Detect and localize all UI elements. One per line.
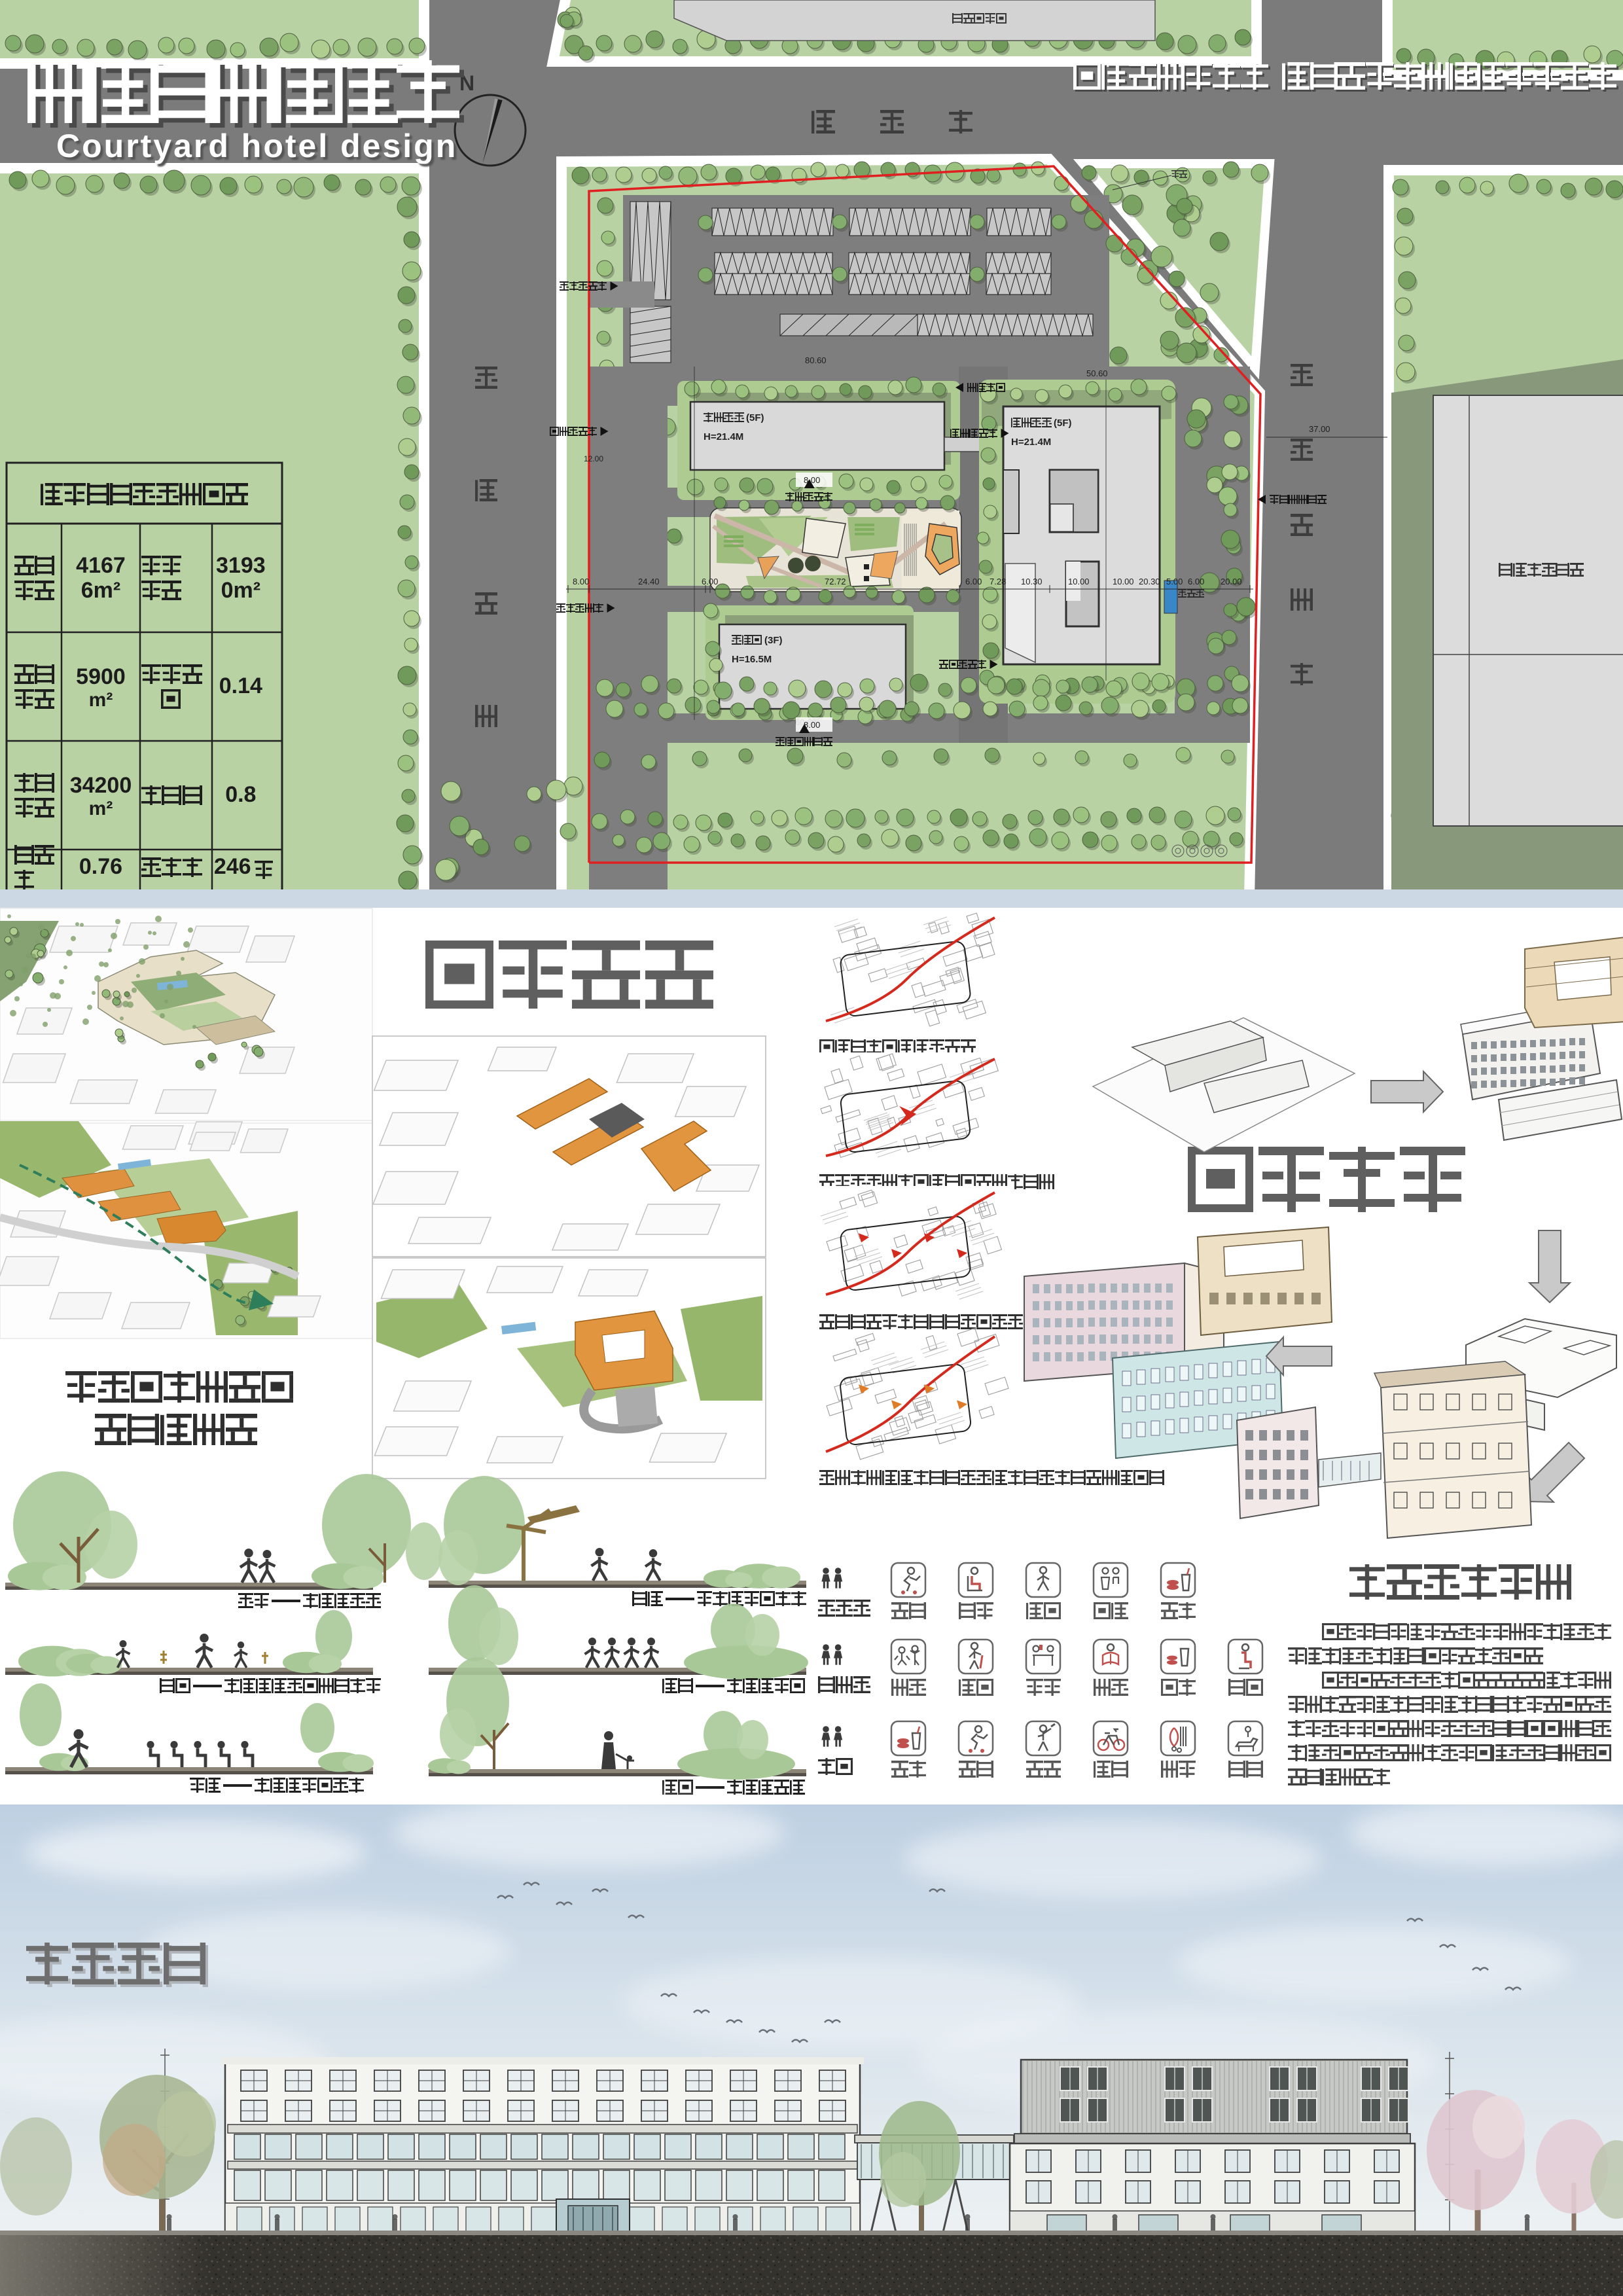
svg-text:20.00: 20.00 [1221,577,1242,586]
svg-text:10.00: 10.00 [1068,577,1090,586]
svg-text:5.00: 5.00 [1166,577,1183,586]
svg-text:12.00: 12.00 [584,454,603,463]
svg-text:80.60: 80.60 [805,355,827,365]
svg-text:50.60: 50.60 [1086,368,1108,378]
svg-text:H=21.4M: H=21.4M [704,431,743,442]
svg-text:(5F): (5F) [746,412,764,423]
svg-text:6m²: 6m² [81,578,120,603]
svg-text:8.00: 8.00 [573,577,589,586]
svg-text:(3F): (3F) [764,635,783,646]
svg-text:20.30: 20.30 [1139,577,1160,586]
svg-text:246: 246 [214,854,251,879]
svg-text:Courtyard hotel design: Courtyard hotel design [56,128,457,164]
svg-text:0.8: 0.8 [225,782,256,807]
svg-text:37.00: 37.00 [1309,424,1330,434]
svg-text:6.00: 6.00 [1188,577,1204,586]
svg-text:0m²: 0m² [221,578,260,603]
svg-text:4167: 4167 [76,553,126,578]
svg-text:72.72: 72.72 [825,577,846,586]
svg-text:6.00: 6.00 [702,577,718,586]
svg-text:m²: m² [89,689,113,711]
svg-text:H=21.4M: H=21.4M [1011,437,1051,448]
svg-text:10.00: 10.00 [1113,577,1134,586]
svg-text:10.30: 10.30 [1021,577,1043,586]
svg-text:34200: 34200 [70,773,132,798]
svg-text:0.14: 0.14 [219,673,262,698]
svg-text:7.28: 7.28 [990,577,1006,586]
svg-text:(5F): (5F) [1054,418,1072,429]
svg-text:24.40: 24.40 [638,577,660,586]
svg-text:H=16.5M: H=16.5M [732,654,772,665]
svg-text:5900: 5900 [76,664,126,689]
svg-text:8.00: 8.00 [804,475,820,485]
svg-text:m²: m² [89,798,113,819]
svg-text:6.00: 6.00 [965,577,982,586]
svg-text:3193: 3193 [216,553,266,578]
svg-text:0.76: 0.76 [79,854,122,879]
